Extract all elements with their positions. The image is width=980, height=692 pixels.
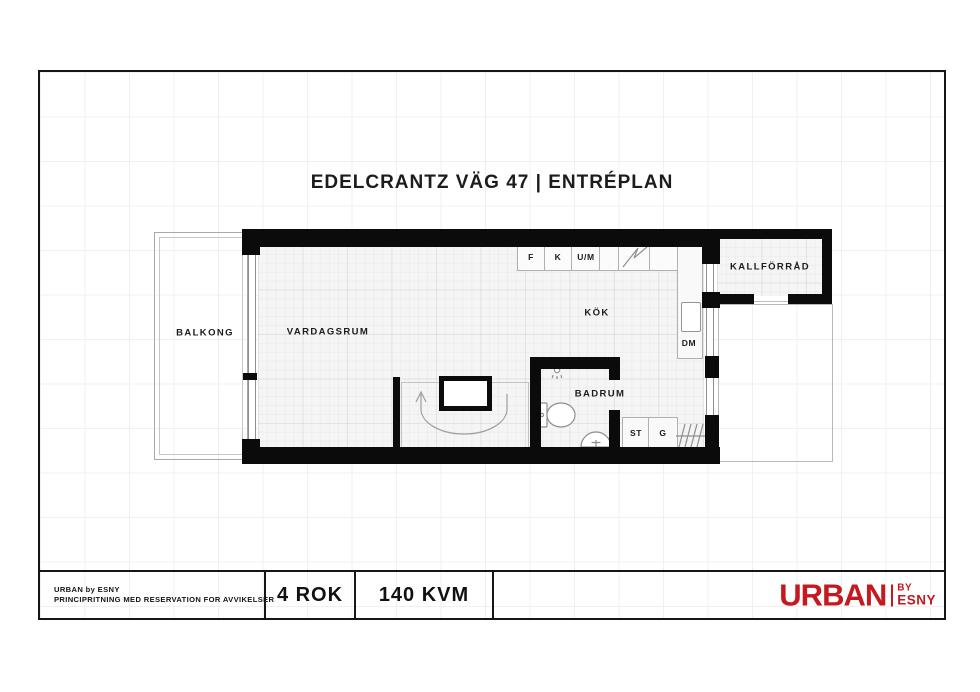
wall-segment — [788, 294, 832, 304]
wall-segment — [822, 229, 832, 304]
room-label-kok: KÖK — [584, 308, 609, 319]
rooms-count: 4 ROK — [266, 572, 354, 618]
floor-plan-page: EDELCRANTZ VÄG 47 | ENTRÉPLAN — [0, 0, 980, 692]
room-label-balkong: BALKONG — [176, 328, 234, 339]
counter-cabinet-2 — [649, 245, 680, 271]
right-window-1 — [706, 264, 714, 292]
logo-brand: URBAN — [779, 580, 886, 611]
balcony-window — [248, 253, 256, 373]
footer-divider — [492, 572, 494, 618]
wall-segment — [530, 357, 620, 369]
wall-segment — [242, 229, 720, 247]
drawing-frame: EDELCRANTZ VÄG 47 | ENTRÉPLAN — [38, 70, 946, 620]
wall-segment — [718, 229, 832, 239]
title-block: URBAN by ESNY PRINCIPRITNING MED RESERVA… — [40, 570, 944, 618]
balcony-window-2 — [248, 380, 256, 440]
company-line: URBAN by ESNY — [54, 585, 274, 595]
area-value: 140 KVM — [356, 572, 492, 618]
wall-segment — [243, 373, 257, 380]
terrace-outline — [718, 304, 833, 462]
closet-label-g: G — [659, 428, 666, 438]
room-label-badrum: BADRUM — [575, 389, 626, 400]
terrace-door — [706, 378, 714, 415]
appliance-label-dm: DM — [682, 338, 696, 348]
logo-name: ESNY — [897, 593, 936, 607]
room-label-kallforrad: KALLFÖRRÅD — [730, 262, 810, 273]
balcony-inner-outline — [159, 237, 243, 455]
kitchen-sink — [681, 302, 701, 332]
wall-segment — [242, 229, 260, 255]
wall-segment — [393, 377, 400, 449]
wall-segment — [718, 294, 754, 304]
wall-segment — [705, 415, 719, 449]
wall-segment — [705, 356, 719, 378]
disclaimer-line: PRINCIPRITNING MED RESERVATION FOR AVVIK… — [54, 595, 274, 605]
urban-by-esny-logo: URBAN BY ESNY — [779, 580, 936, 611]
kitchen-window — [706, 308, 714, 356]
wall-segment — [530, 357, 541, 449]
appliance-label-k: K — [555, 252, 562, 262]
kallforrad-door-threshold — [754, 301, 788, 302]
wall-segment — [609, 357, 620, 380]
appliance-label-f: F — [528, 252, 534, 262]
stove-icon — [619, 245, 650, 270]
washbasin-icon — [579, 429, 613, 448]
closet-label-st: ST — [630, 428, 642, 438]
wall-segment — [609, 410, 620, 449]
wall-segment — [242, 447, 720, 464]
stair-island-wall — [439, 376, 492, 411]
logo-separator — [891, 584, 893, 606]
disclaimer-text: URBAN by ESNY PRINCIPRITNING MED RESERVA… — [54, 585, 274, 605]
wardrobe-hanger-rail-icon — [676, 421, 706, 450]
appliance-label-um: U/M — [577, 252, 594, 262]
room-label-vardagsrum: VARDAGSRUM — [287, 327, 369, 338]
toilet-icon — [536, 397, 578, 433]
